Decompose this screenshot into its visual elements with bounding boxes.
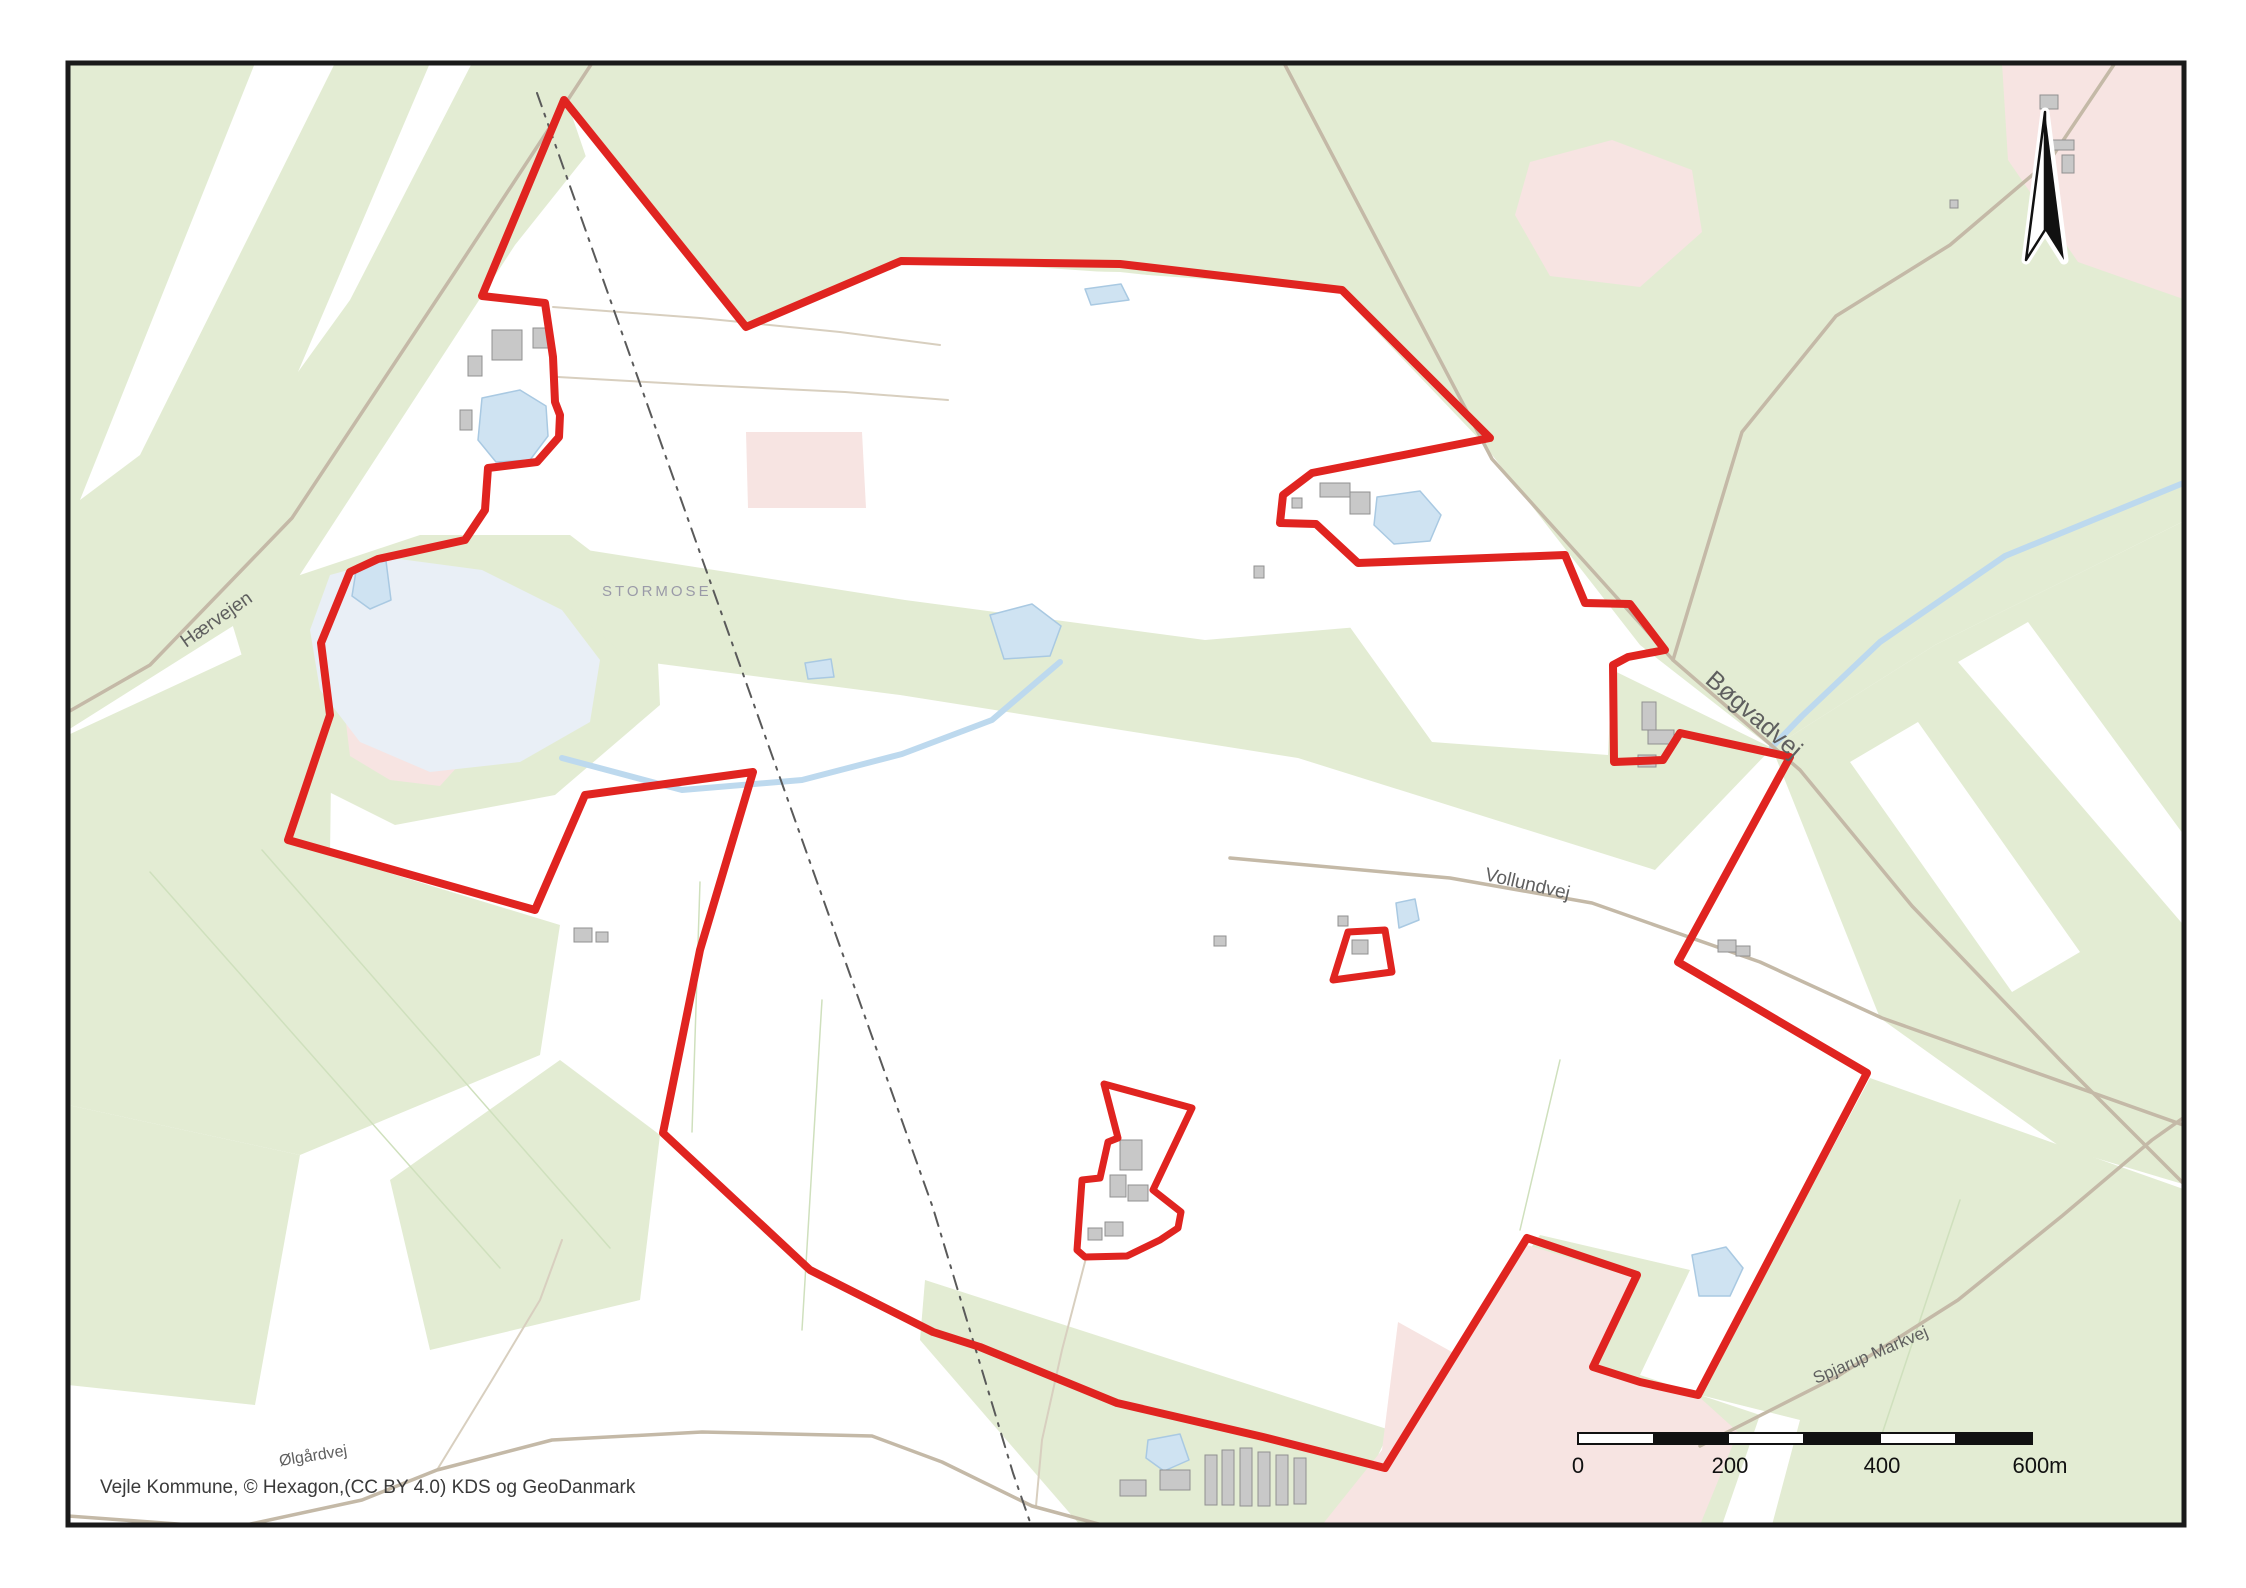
scale-bar-segment (1579, 1434, 1653, 1443)
scale-tick-600m: 600m (2012, 1453, 2067, 1478)
building-footprint (492, 330, 522, 360)
lake-shape (478, 390, 548, 462)
building-footprint (574, 928, 592, 942)
building-footprint (1222, 1450, 1234, 1505)
building-footprint (1338, 916, 1348, 926)
building-footprint (2052, 140, 2074, 150)
green-area (390, 1060, 660, 1350)
building-footprint (1718, 940, 1736, 952)
lake-shape (990, 604, 1061, 659)
building-footprint (468, 356, 482, 376)
building-footprint (1736, 946, 1750, 956)
lake-shape (1692, 1247, 1743, 1296)
building-footprint (1292, 498, 1302, 508)
building-footprint (1128, 1185, 1148, 1201)
building-footprint (1110, 1175, 1126, 1197)
building-footprint (1120, 1140, 1142, 1170)
scale-tick-400: 400 (1864, 1453, 1901, 1478)
building-footprint (1160, 1470, 1190, 1490)
built-up-area (746, 432, 866, 508)
scale-bar-segment (1729, 1434, 1803, 1443)
lake-shape (805, 659, 834, 679)
building-footprint (1205, 1455, 1217, 1505)
basemap-layer (68, 63, 2186, 1528)
scale-tick-0: 0 (1572, 1453, 1584, 1478)
building-footprint (1258, 1452, 1270, 1506)
building-footprint (1120, 1480, 1146, 1496)
building-footprint (1276, 1455, 1288, 1505)
building-footprint (1214, 936, 1226, 946)
building-footprint (1240, 1448, 1252, 1506)
lake-shape (1396, 899, 1419, 928)
building-footprint (1320, 483, 1350, 497)
building-footprint (1088, 1228, 1102, 1240)
building-footprint (1352, 940, 1368, 954)
label-stormose: STORMOSE (602, 583, 712, 600)
building-footprint (1350, 492, 1370, 514)
building-footprint (460, 410, 472, 430)
label-vollundvej: Vollundvej (1483, 864, 1572, 904)
scale-bar-segment (1881, 1434, 1955, 1443)
attribution: Vejle Kommune, © Hexagon,(CC BY 4.0) KDS… (100, 1477, 636, 1498)
building-footprint (1950, 200, 1958, 208)
map-export-page: STORMOSE Hærvejen Bøgvadvej Vollundvej S… (0, 0, 2246, 1588)
field-boundary-line (692, 882, 700, 1132)
green-area (68, 1105, 300, 1405)
building-footprint (1294, 1458, 1306, 1504)
map-canvas: STORMOSE Hærvejen Bøgvadvej Vollundvej S… (0, 0, 2246, 1588)
site-boundary-enclave (1333, 930, 1392, 980)
building-footprint (1254, 566, 1264, 578)
building-footprint (596, 932, 608, 942)
green-area (920, 1280, 1390, 1525)
field-boundary-line (1520, 1060, 1560, 1230)
building-footprint (1105, 1222, 1123, 1236)
building-footprint (2040, 95, 2058, 109)
label-olgardvej: Ølgårdvej (278, 1441, 348, 1469)
building-footprint (1642, 702, 1656, 730)
building-footprint (2062, 155, 2074, 173)
field-boundary-line (802, 1000, 822, 1330)
scale-tick-200: 200 (1712, 1453, 1749, 1478)
